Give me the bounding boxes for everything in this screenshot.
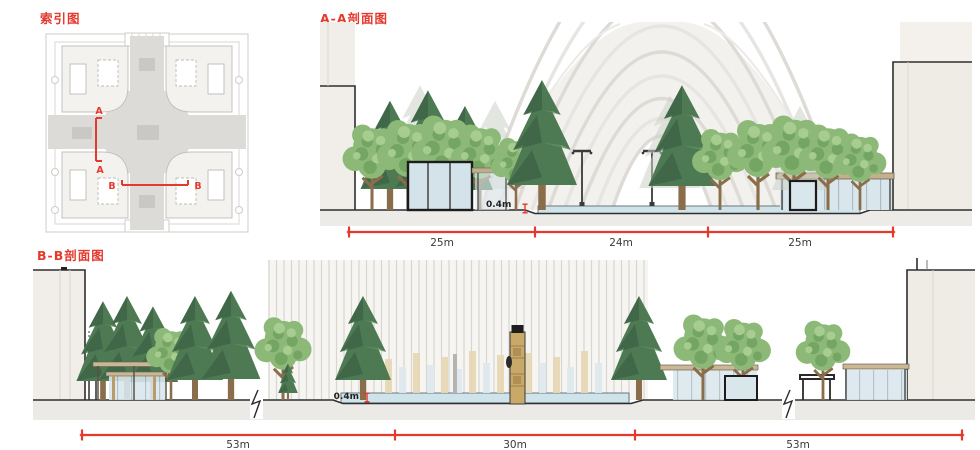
section-aa-drawing: 0.4m 25m 24m 25m [320, 22, 972, 248]
glass-pavilion-right-2 [843, 364, 909, 400]
section-marker-label: B [194, 181, 201, 192]
drawing-sheet: 索引图 [0, 0, 980, 450]
section-bb-drawing: 0.4m 53m 30m 53m [33, 258, 978, 450]
ground-profile [33, 393, 975, 420]
dimension-label: 30m [503, 439, 527, 450]
section-marker-label: B [108, 181, 115, 192]
ground-break-left [250, 390, 263, 419]
dimension-label: 25m [430, 237, 454, 248]
pergola-right [800, 375, 834, 400]
index-map-title: 索引图 [40, 8, 81, 27]
right-building [907, 258, 975, 400]
dimension-label: 25m [788, 237, 812, 248]
ground-break-right [782, 390, 795, 419]
section-marker-label: A [95, 106, 103, 117]
dimension-label: 53m [786, 439, 810, 450]
dimension-label: 24m [609, 237, 633, 248]
pavilion-entry-box [725, 376, 757, 400]
section-marker-label: A [96, 165, 104, 176]
dimension-label: 53m [226, 439, 250, 450]
gray-post [453, 354, 457, 393]
dimension-line-aa [346, 227, 895, 238]
index-map-drawing: A A B B [42, 30, 252, 236]
section-bb-title: B-B剖面图 [37, 245, 105, 264]
tree [796, 321, 851, 400]
water-channel [341, 393, 629, 403]
pavilion-entry-box [790, 181, 816, 210]
depth-label: 0.4m [486, 200, 511, 210]
right-building [893, 22, 972, 210]
depth-label: 0.4m [334, 392, 359, 402]
left-building [320, 22, 355, 210]
